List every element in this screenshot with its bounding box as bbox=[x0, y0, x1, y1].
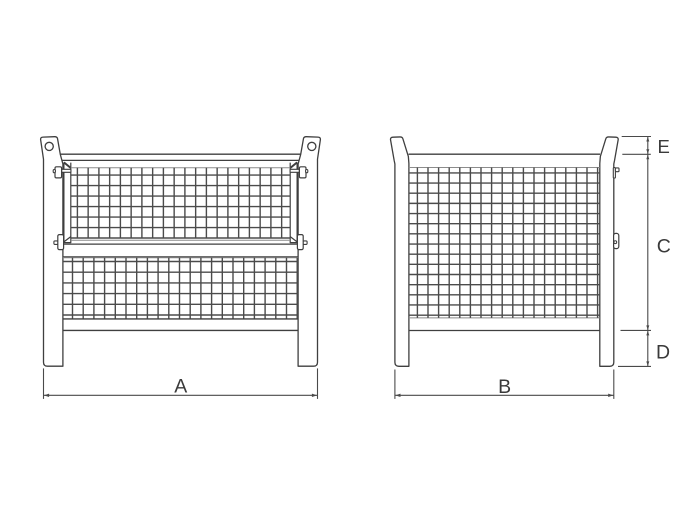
svg-text:E: E bbox=[658, 136, 670, 157]
svg-text:B: B bbox=[498, 376, 511, 398]
svg-text:D: D bbox=[656, 341, 670, 363]
svg-text:A: A bbox=[174, 375, 187, 397]
svg-text:C: C bbox=[657, 235, 671, 257]
